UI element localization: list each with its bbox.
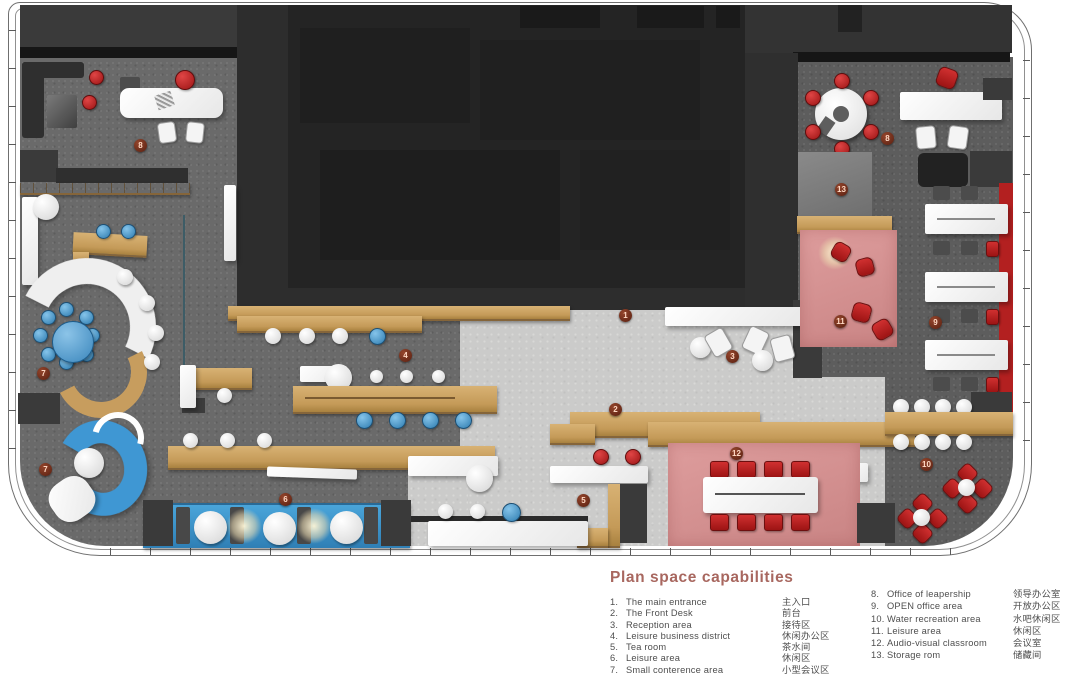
area-marker-number: 6: [283, 495, 287, 504]
legend-item-english: Leisure area: [887, 626, 1013, 636]
legend-item-number: 5.: [610, 642, 626, 652]
legend-item-number: 9.: [871, 601, 887, 611]
area-marker: 4: [399, 349, 412, 362]
legend-item-number: 8.: [871, 589, 887, 599]
area-marker-number: 5: [581, 496, 585, 505]
legend-title: Plan space capabilities: [610, 569, 794, 587]
legend-item-number: 7.: [610, 665, 626, 675]
legend-column-left: 1. The main entrance 主入口 2. The Front De…: [610, 594, 830, 673]
area-marker: 1: [619, 309, 632, 322]
legend-item-number: 10.: [871, 614, 887, 624]
area-marker: 7: [37, 367, 50, 380]
area-marker-number: 1: [623, 311, 627, 320]
area-marker: 6: [279, 493, 292, 506]
legend-item-english: Leisure business district: [626, 631, 782, 641]
area-marker: 7: [39, 463, 52, 476]
legend-item-english: Small conterence area: [626, 665, 782, 675]
legend-item-english: Water recreation area: [887, 614, 1013, 624]
legend-item-english: Audio-visual classroom: [887, 638, 1013, 648]
area-marker-number: 7: [43, 465, 47, 474]
legend-item: 12. Audio-visual classroom 会议室: [871, 635, 1061, 647]
marker-layer: 1 2 3 4 5 6 7 7 8 8 9 10 11 12 13: [0, 0, 1080, 560]
area-marker: 3: [726, 350, 739, 363]
legend-item-chinese: 储藏间: [1013, 647, 1042, 661]
legend-item: 9. OPEN office area 开放办公区: [871, 598, 1061, 610]
area-marker-number: 3: [730, 352, 734, 361]
area-marker: 10: [920, 458, 933, 471]
legend-item-number: 6.: [610, 653, 626, 663]
legend-item-english: Storage rom: [887, 650, 1013, 660]
area-marker: 11: [834, 315, 847, 328]
legend: Plan space capabilities 1. The main entr…: [608, 569, 1080, 685]
area-marker-number: 4: [403, 351, 407, 360]
legend-item-chinese: 小型会议区: [782, 662, 830, 676]
legend-item-number: 1.: [610, 597, 626, 607]
legend-item-english: Reception area: [626, 620, 782, 630]
legend-item-number: 2.: [610, 608, 626, 618]
legend-item-english: Tea room: [626, 642, 782, 652]
legend-item-number: 3.: [610, 620, 626, 630]
area-marker: 9: [929, 316, 942, 329]
floor-plan: 1 2 3 4 5 6 7 7 8 8 9 10 11 12 13: [0, 0, 1080, 560]
area-marker-number: 7: [41, 369, 45, 378]
legend-item: 1. The main entrance 主入口: [610, 594, 830, 605]
area-marker-number: 8: [138, 141, 142, 150]
legend-item-english: OPEN office area: [887, 601, 1013, 611]
legend-item-english: Leisure area: [626, 653, 782, 663]
legend-item: 8. Office of leapership 领导办公室: [871, 586, 1061, 598]
area-marker: 5: [577, 494, 590, 507]
legend-item-english: The main entrance: [626, 597, 782, 607]
area-marker-number: 12: [732, 449, 741, 458]
area-marker-number: 11: [836, 317, 844, 326]
floor-plan-page: { "legend": { "title": "Plan space capab…: [0, 0, 1080, 688]
area-marker-number: 10: [922, 460, 931, 469]
area-marker: 8: [134, 139, 147, 152]
legend-column-right: 8. Office of leapership 领导办公室 9. OPEN of…: [871, 586, 1061, 660]
area-marker: 12: [730, 447, 743, 460]
legend-item-number: 12.: [871, 638, 887, 648]
legend-item-number: 11.: [871, 626, 887, 636]
legend-item-number: 13.: [871, 650, 887, 660]
legend-item: 10. Water recreation area 水吧休闲区: [871, 611, 1061, 623]
area-marker: 13: [835, 183, 848, 196]
area-marker-number: 8: [885, 134, 889, 143]
legend-item: 13. Storage rom 储藏间: [871, 647, 1061, 659]
legend-item-english: Office of leapership: [887, 589, 1013, 599]
area-marker-number: 13: [837, 185, 846, 194]
area-marker-number: 9: [933, 318, 937, 327]
legend-item: 11. Leisure area 休闲区: [871, 623, 1061, 635]
area-marker-number: 2: [613, 405, 617, 414]
legend-item-number: 4.: [610, 631, 626, 641]
legend-item-english: The Front Desk: [626, 608, 782, 618]
area-marker: 2: [609, 403, 622, 416]
area-marker: 8: [881, 132, 894, 145]
